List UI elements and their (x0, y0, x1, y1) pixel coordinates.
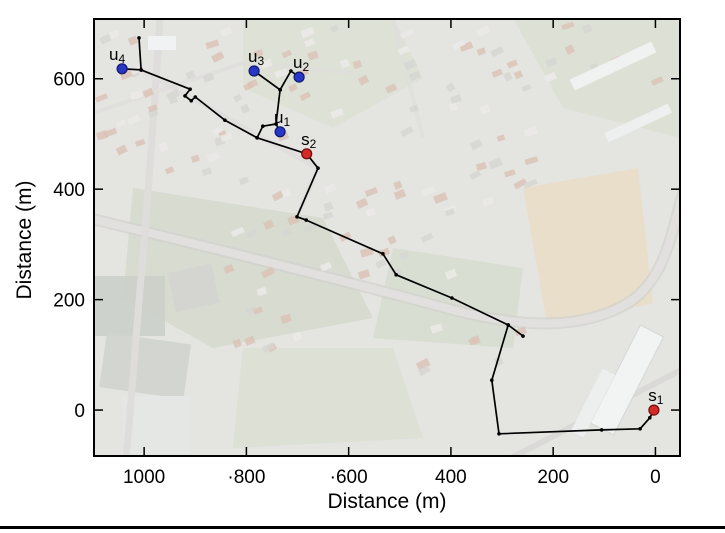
figure-plot: s1s2u1u2u3u41000·800·6004002000020040060… (0, 0, 725, 533)
x-tick-label: 400 (435, 467, 467, 488)
map-wash-overlay (93, 18, 681, 457)
x-tick-label: 200 (537, 467, 569, 488)
y-tick-label: 200 (53, 291, 85, 312)
x-tick-label: ·600 (330, 467, 368, 488)
x-tick-label: 1000 (123, 467, 165, 488)
y-tick-label: 600 (53, 70, 85, 91)
y-tick-label: 400 (53, 180, 85, 201)
x-tick-label: ·800 (227, 467, 265, 488)
x-tick-label: 0 (650, 467, 661, 488)
bottom-rule (0, 526, 725, 529)
x-axis-label: Distance (m) (93, 490, 681, 514)
aerial-map (93, 18, 681, 457)
y-axis-label: Distance (m) (12, 145, 38, 335)
y-tick-label: 0 (74, 401, 85, 422)
